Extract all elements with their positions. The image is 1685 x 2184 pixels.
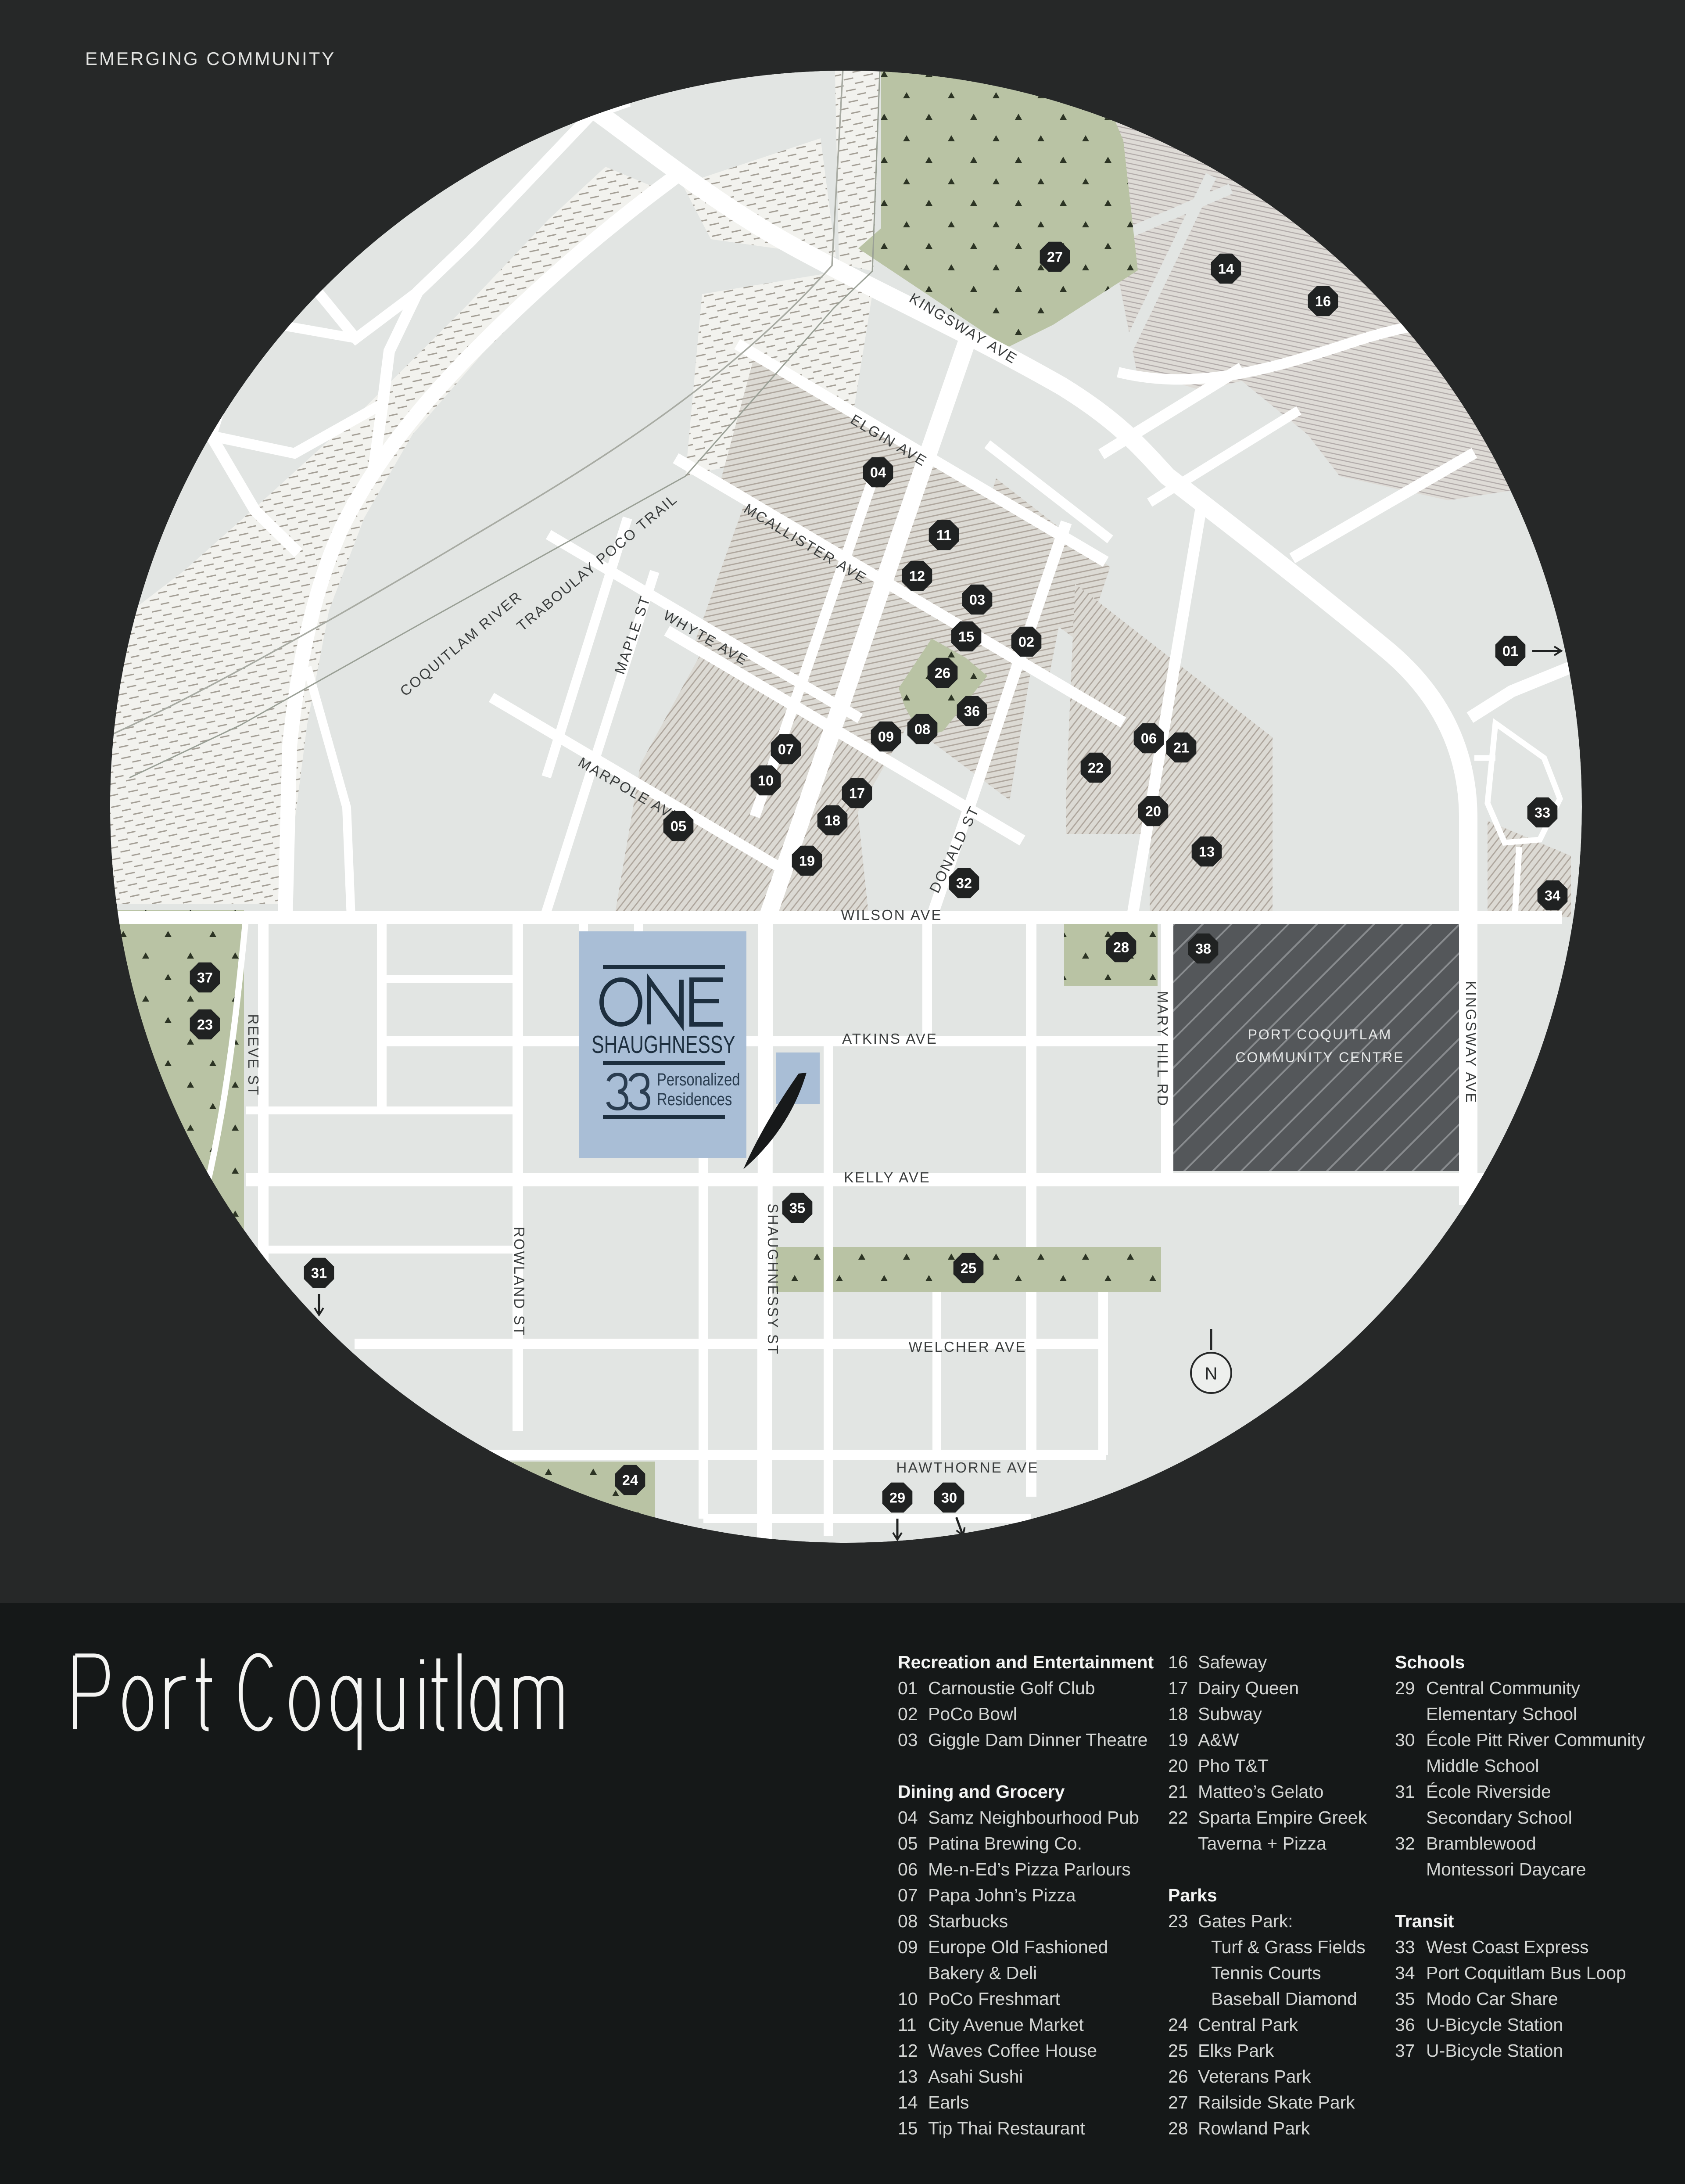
svg-text:Turf & Grass Fields: Turf & Grass Fields bbox=[1211, 1937, 1366, 1957]
svg-text:35: 35 bbox=[789, 1200, 805, 1216]
svg-text:Elementary School: Elementary School bbox=[1426, 1704, 1577, 1724]
svg-text:10: 10 bbox=[758, 773, 774, 789]
svg-text:05: 05 bbox=[898, 1833, 918, 1854]
svg-text:COMMUNITY CENTRE: COMMUNITY CENTRE bbox=[1235, 1049, 1404, 1065]
svg-text:MARY HILL RD: MARY HILL RD bbox=[1154, 991, 1171, 1107]
svg-text:Elks Park: Elks Park bbox=[1198, 2040, 1274, 2061]
svg-text:École Riverside: École Riverside bbox=[1426, 1782, 1551, 1802]
svg-text:11: 11 bbox=[898, 2015, 917, 2035]
svg-text:26: 26 bbox=[935, 665, 950, 681]
svg-text:KELLY AVE: KELLY AVE bbox=[844, 1169, 931, 1185]
svg-text:11: 11 bbox=[936, 528, 951, 543]
svg-text:Patina Brewing Co.: Patina Brewing Co. bbox=[928, 1833, 1082, 1854]
svg-text:Central Community: Central Community bbox=[1426, 1678, 1580, 1698]
svg-text:37: 37 bbox=[1395, 2040, 1415, 2061]
svg-text:Parks: Parks bbox=[1168, 1885, 1217, 1905]
svg-text:Giggle Dam Dinner Theatre: Giggle Dam Dinner Theatre bbox=[928, 1730, 1148, 1750]
svg-text:34: 34 bbox=[1545, 888, 1560, 904]
svg-text:Dairy Queen: Dairy Queen bbox=[1198, 1678, 1299, 1698]
svg-text:REEVE ST: REEVE ST bbox=[245, 1014, 262, 1096]
svg-text:02: 02 bbox=[898, 1704, 918, 1724]
svg-text:26: 26 bbox=[1168, 2066, 1188, 2087]
svg-text:33: 33 bbox=[1534, 805, 1550, 821]
svg-text:38: 38 bbox=[1195, 941, 1211, 957]
svg-text:25: 25 bbox=[1168, 2040, 1188, 2061]
svg-text:HAWTHORNE AVE: HAWTHORNE AVE bbox=[896, 1459, 1039, 1476]
svg-text:ATKINS AVE: ATKINS AVE bbox=[842, 1031, 938, 1047]
svg-text:01: 01 bbox=[1502, 643, 1518, 659]
svg-text:27: 27 bbox=[1168, 2092, 1188, 2112]
svg-text:30: 30 bbox=[1395, 1730, 1415, 1750]
svg-text:Pho T&T: Pho T&T bbox=[1198, 1756, 1269, 1776]
svg-text:09: 09 bbox=[898, 1937, 918, 1957]
svg-text:30: 30 bbox=[941, 1490, 957, 1506]
svg-text:Starbucks: Starbucks bbox=[928, 1911, 1008, 1931]
svg-text:Montessori Daycare: Montessori Daycare bbox=[1426, 1859, 1586, 1879]
svg-text:07: 07 bbox=[778, 742, 794, 758]
svg-text:Asahi Sushi: Asahi Sushi bbox=[928, 2066, 1023, 2087]
svg-text:35: 35 bbox=[1395, 1989, 1415, 2009]
svg-text:Me-n-Ed’s Pizza Parlours: Me-n-Ed’s Pizza Parlours bbox=[928, 1859, 1131, 1879]
svg-text:13: 13 bbox=[898, 2066, 918, 2087]
svg-text:27: 27 bbox=[1047, 249, 1063, 265]
svg-text:28: 28 bbox=[1168, 2118, 1188, 2138]
svg-text:02: 02 bbox=[1018, 634, 1034, 650]
svg-text:19: 19 bbox=[799, 853, 815, 869]
svg-text:Baseball Diamond: Baseball Diamond bbox=[1211, 1989, 1357, 2009]
svg-text:22: 22 bbox=[1168, 1807, 1188, 1828]
svg-text:24: 24 bbox=[1168, 2015, 1188, 2035]
svg-text:15: 15 bbox=[958, 629, 974, 645]
svg-text:06: 06 bbox=[898, 1859, 918, 1879]
svg-text:37: 37 bbox=[197, 970, 213, 986]
svg-text:City Avenue Market: City Avenue Market bbox=[928, 2015, 1084, 2035]
svg-text:U-Bicycle Station: U-Bicycle Station bbox=[1426, 2040, 1563, 2061]
svg-text:Matteo’s Gelato: Matteo’s Gelato bbox=[1198, 1782, 1323, 1802]
svg-text:SHAUGHNESSY ST: SHAUGHNESSY ST bbox=[765, 1203, 781, 1355]
svg-text:03: 03 bbox=[898, 1730, 918, 1750]
svg-text:18: 18 bbox=[1168, 1704, 1188, 1724]
svg-text:PoCo Freshmart: PoCo Freshmart bbox=[928, 1989, 1060, 2009]
svg-text:Earls: Earls bbox=[928, 2092, 969, 2112]
svg-text:PoCo Bowl: PoCo Bowl bbox=[928, 1704, 1017, 1724]
svg-text:Waves Coffee House: Waves Coffee House bbox=[928, 2040, 1097, 2061]
svg-text:EMERGING COMMUNITY: EMERGING COMMUNITY bbox=[85, 48, 336, 69]
svg-text:22: 22 bbox=[1088, 760, 1104, 776]
svg-text:West Coast Express: West Coast Express bbox=[1426, 1937, 1589, 1957]
svg-text:33: 33 bbox=[1395, 1937, 1415, 1957]
svg-text:20: 20 bbox=[1168, 1756, 1188, 1776]
svg-text:29: 29 bbox=[1395, 1678, 1415, 1698]
svg-text:Middle School: Middle School bbox=[1426, 1756, 1539, 1776]
svg-text:15: 15 bbox=[898, 2118, 918, 2138]
svg-text:05: 05 bbox=[670, 819, 686, 834]
svg-text:A&W: A&W bbox=[1198, 1730, 1239, 1750]
svg-text:23: 23 bbox=[197, 1017, 213, 1033]
svg-text:17: 17 bbox=[849, 786, 865, 801]
svg-text:Residences: Residences bbox=[657, 1089, 732, 1109]
svg-text:14: 14 bbox=[1218, 261, 1234, 277]
svg-text:Personalized: Personalized bbox=[657, 1070, 740, 1089]
svg-text:PORT COQUITLAM: PORT COQUITLAM bbox=[1248, 1027, 1392, 1042]
svg-text:16: 16 bbox=[1168, 1652, 1188, 1672]
svg-text:U-Bicycle Station: U-Bicycle Station bbox=[1426, 2015, 1563, 2035]
svg-text:36: 36 bbox=[1395, 2015, 1415, 2035]
svg-text:Sparta Empire Greek: Sparta Empire Greek bbox=[1198, 1807, 1367, 1828]
svg-text:25: 25 bbox=[961, 1261, 976, 1276]
svg-text:Bakery & Deli: Bakery & Deli bbox=[928, 1963, 1037, 1983]
svg-text:32: 32 bbox=[1395, 1833, 1415, 1854]
svg-text:17: 17 bbox=[1168, 1678, 1188, 1698]
svg-text:36: 36 bbox=[964, 704, 980, 719]
svg-text:Tennis Courts: Tennis Courts bbox=[1211, 1963, 1321, 1983]
svg-text:08: 08 bbox=[914, 722, 930, 737]
svg-text:19: 19 bbox=[1168, 1730, 1188, 1750]
svg-text:Papa John’s Pizza: Papa John’s Pizza bbox=[928, 1885, 1076, 1905]
svg-text:Bramblewood: Bramblewood bbox=[1426, 1833, 1536, 1854]
svg-text:29: 29 bbox=[889, 1490, 905, 1506]
svg-text:03: 03 bbox=[969, 592, 985, 608]
svg-text:21: 21 bbox=[1168, 1782, 1188, 1802]
svg-text:Dining and Grocery: Dining and Grocery bbox=[898, 1782, 1065, 1802]
svg-text:Schools: Schools bbox=[1395, 1652, 1465, 1672]
svg-text:Recreation and Entertainment: Recreation and Entertainment bbox=[898, 1652, 1154, 1672]
svg-text:28: 28 bbox=[1113, 940, 1129, 955]
svg-text:09: 09 bbox=[878, 729, 894, 745]
svg-text:Gates Park:: Gates Park: bbox=[1198, 1911, 1293, 1931]
svg-text:Taverna + Pizza: Taverna + Pizza bbox=[1198, 1833, 1326, 1854]
svg-text:32: 32 bbox=[956, 876, 972, 891]
svg-text:08: 08 bbox=[898, 1911, 918, 1931]
svg-text:23: 23 bbox=[1168, 1911, 1188, 1931]
svg-text:Central Park: Central Park bbox=[1198, 2015, 1298, 2035]
svg-text:18: 18 bbox=[825, 813, 840, 829]
svg-text:13: 13 bbox=[1199, 844, 1215, 860]
svg-text:KINGSWAY AVE: KINGSWAY AVE bbox=[1463, 981, 1479, 1104]
svg-text:Railside Skate Park: Railside Skate Park bbox=[1198, 2092, 1355, 2112]
svg-text:07: 07 bbox=[898, 1885, 918, 1905]
svg-text:N: N bbox=[1205, 1364, 1218, 1383]
svg-text:WELCHER AVE: WELCHER AVE bbox=[909, 1339, 1027, 1355]
svg-text:Safeway: Safeway bbox=[1198, 1652, 1267, 1672]
svg-text:06: 06 bbox=[1141, 731, 1157, 747]
svg-text:04: 04 bbox=[898, 1807, 918, 1828]
svg-text:12: 12 bbox=[898, 2040, 918, 2061]
svg-text:31: 31 bbox=[1395, 1782, 1415, 1802]
svg-text:14: 14 bbox=[898, 2092, 918, 2112]
svg-text:21: 21 bbox=[1173, 740, 1189, 756]
svg-text:Subway: Subway bbox=[1198, 1704, 1262, 1724]
svg-text:Transit: Transit bbox=[1395, 1911, 1454, 1931]
svg-text:31: 31 bbox=[311, 1265, 327, 1281]
svg-text:Secondary School: Secondary School bbox=[1426, 1807, 1572, 1828]
svg-text:12: 12 bbox=[909, 568, 925, 584]
svg-text:Samz Neighbourhood Pub: Samz Neighbourhood Pub bbox=[928, 1807, 1139, 1828]
svg-text:16: 16 bbox=[1315, 294, 1331, 309]
svg-text:20: 20 bbox=[1145, 804, 1161, 819]
svg-text:Rowland Park: Rowland Park bbox=[1198, 2118, 1310, 2138]
svg-text:24: 24 bbox=[622, 1473, 638, 1488]
svg-text:SHAUGHNESSY: SHAUGHNESSY bbox=[592, 1030, 735, 1058]
svg-text:10: 10 bbox=[898, 1989, 918, 2009]
svg-text:WILSON AVE: WILSON AVE bbox=[841, 907, 942, 923]
svg-text:34: 34 bbox=[1395, 1963, 1415, 1983]
svg-text:Carnoustie Golf Club: Carnoustie Golf Club bbox=[928, 1678, 1095, 1698]
svg-text:École Pitt River Community: École Pitt River Community bbox=[1426, 1730, 1645, 1750]
svg-text:Modo Car Share: Modo Car Share bbox=[1426, 1989, 1558, 2009]
svg-text:Port Coquitlam Bus Loop: Port Coquitlam Bus Loop bbox=[1426, 1963, 1626, 1983]
svg-text:04: 04 bbox=[870, 465, 886, 481]
svg-text:Tip Thai Restaurant: Tip Thai Restaurant bbox=[928, 2118, 1085, 2138]
svg-text:Veterans Park: Veterans Park bbox=[1198, 2066, 1311, 2087]
svg-text:01: 01 bbox=[898, 1678, 918, 1698]
svg-text:Europe Old Fashioned: Europe Old Fashioned bbox=[928, 1937, 1108, 1957]
svg-text:ROWLAND ST: ROWLAND ST bbox=[511, 1227, 527, 1336]
